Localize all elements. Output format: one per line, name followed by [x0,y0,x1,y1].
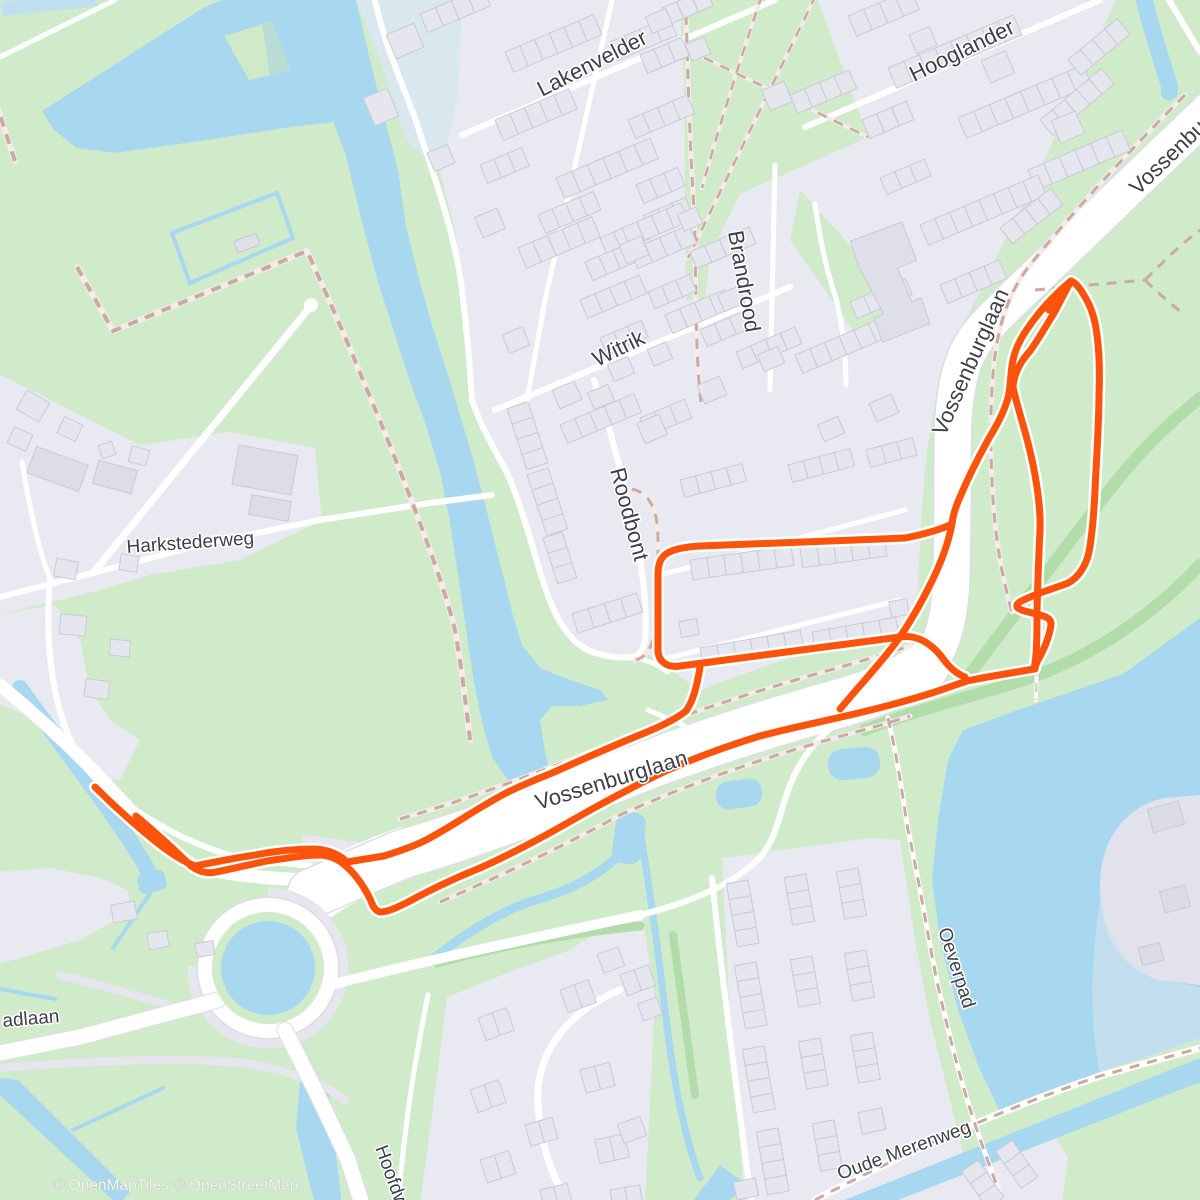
svg-text:© OpenMapTiles © OpenStreetMap: © OpenMapTiles © OpenStreetMap [53,1177,298,1194]
